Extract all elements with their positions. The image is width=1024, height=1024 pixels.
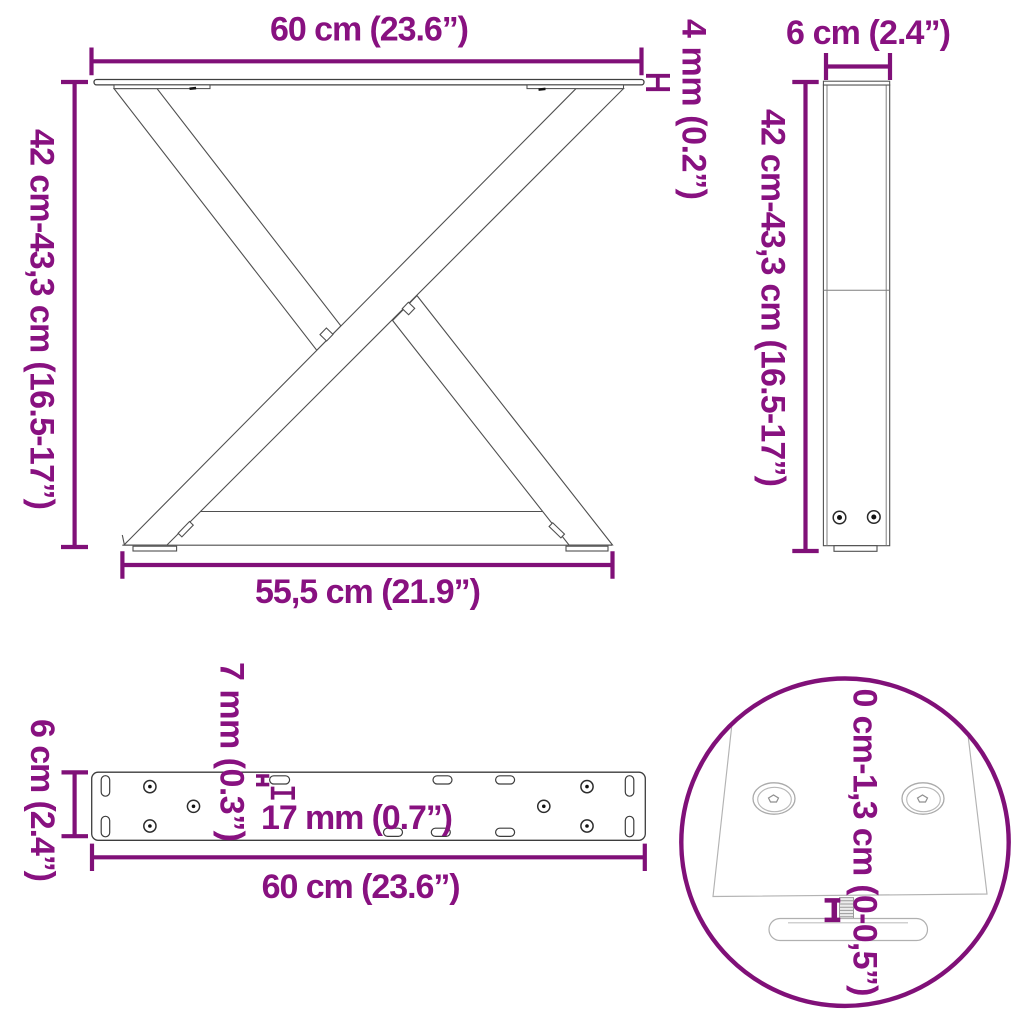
svg-text:42 cm-43,3 cm (16.5-17”): 42 cm-43,3 cm (16.5-17”) [754,109,792,487]
svg-text:0 cm-1,3 cm (0-0,5”): 0 cm-1,3 cm (0-0,5”) [846,689,884,997]
svg-text:55,5 cm (21.9”): 55,5 cm (21.9”) [255,573,481,611]
svg-text:6 cm (2.4”): 6 cm (2.4”) [23,719,61,882]
svg-text:6 cm (2.4”): 6 cm (2.4”) [786,14,951,52]
svg-text:17 mm (0.7”): 17 mm (0.7”) [261,799,453,837]
svg-text:4 mm (0.2”): 4 mm (0.2”) [675,19,713,200]
svg-text:60 cm (23.6”): 60 cm (23.6”) [270,10,469,48]
svg-text:7 mm (0.3”): 7 mm (0.3”) [213,662,251,842]
svg-text:42 cm-43,3 cm (16.5-17”): 42 cm-43,3 cm (16.5-17”) [23,129,61,510]
svg-text:60 cm (23.6”): 60 cm (23.6”) [262,868,461,906]
